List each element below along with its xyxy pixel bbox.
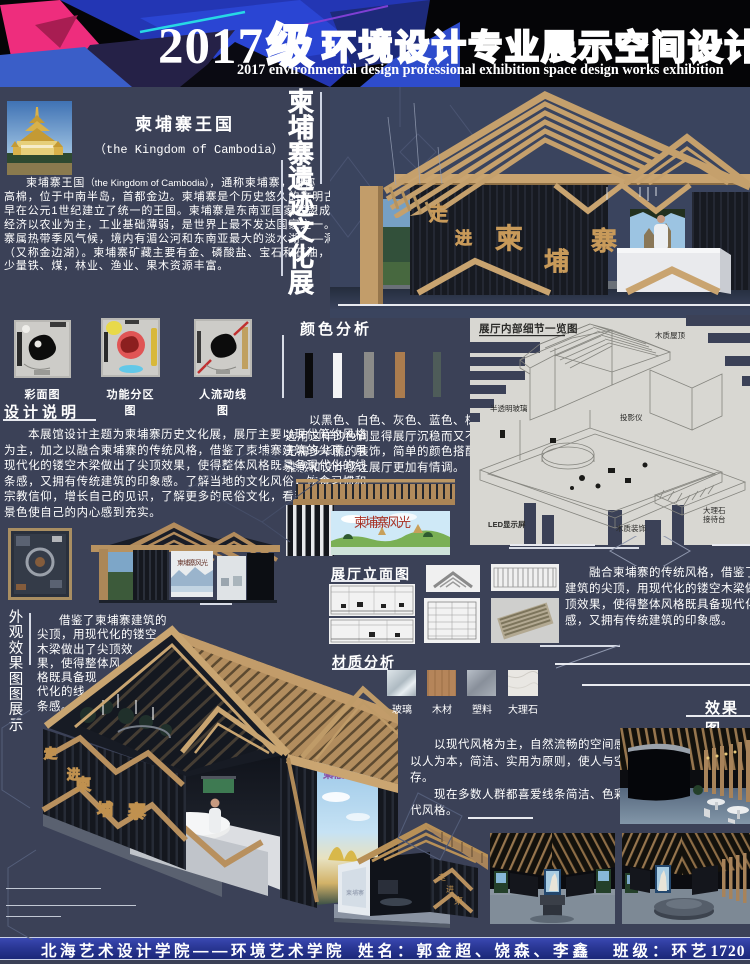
svg-text:寨: 寨 xyxy=(128,802,146,822)
svg-text:柬: 柬 xyxy=(454,896,463,906)
svg-text:大理石: 大理石 xyxy=(703,505,726,515)
svg-text:柬埔寨: 柬埔寨 xyxy=(346,889,364,897)
svg-text:走: 走 xyxy=(438,873,446,882)
svg-text:柬: 柬 xyxy=(495,223,523,254)
svg-text:投影仪: 投影仪 xyxy=(620,412,643,422)
svg-text:柬埔寨风光: 柬埔寨风光 xyxy=(354,515,411,530)
svg-text:进: 进 xyxy=(455,229,472,248)
svg-text:接待台: 接待台 xyxy=(703,514,726,524)
svg-text:埔: 埔 xyxy=(97,801,113,819)
svg-text:进: 进 xyxy=(446,885,454,894)
svg-text:柬埔寨风光: 柬埔寨风光 xyxy=(177,558,208,567)
svg-text:埔: 埔 xyxy=(544,248,569,276)
svg-text:展厅内部细节一览图: 展厅内部细节一览图 xyxy=(479,322,578,335)
svg-text:寨: 寨 xyxy=(591,226,617,256)
svg-text:木质装饰: 木质装饰 xyxy=(616,523,646,533)
svg-text:LED显示屏: LED显示屏 xyxy=(488,520,526,529)
svg-text:走: 走 xyxy=(429,203,448,225)
svg-text:柬: 柬 xyxy=(75,776,91,794)
svg-text:半透明玻璃: 半透明玻璃 xyxy=(490,403,528,413)
svg-text:木质屋顶: 木质屋顶 xyxy=(655,330,685,340)
svg-text:走: 走 xyxy=(44,746,57,761)
